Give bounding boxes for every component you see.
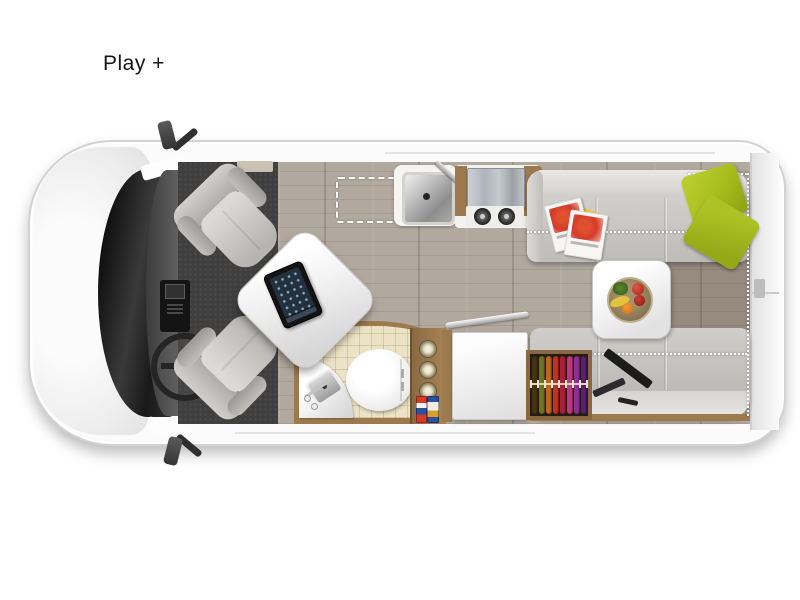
glass-icon	[419, 361, 437, 379]
magazine-icon	[564, 209, 609, 260]
glass-icon	[419, 340, 437, 358]
optional-area-dashed-outline	[336, 177, 400, 223]
fridge-wood-trim	[442, 330, 452, 422]
center-console	[160, 280, 190, 332]
magazine-cover	[570, 214, 603, 243]
rear-doors	[750, 153, 779, 430]
fruit-orange	[622, 303, 633, 314]
wardrobe-hangers-icon	[530, 380, 588, 388]
cushion-seam	[664, 328, 667, 390]
cushion-seam	[664, 198, 667, 262]
stove-lid-icon	[467, 168, 525, 208]
bed-conversion-dashed-line	[747, 173, 751, 416]
bathroom-knob	[311, 403, 318, 410]
bathroom-knob	[304, 395, 311, 402]
rear-door-latch	[754, 279, 765, 298]
sofa-top-armrest	[527, 170, 543, 262]
fruit-grapes	[613, 282, 628, 295]
sink-drain	[423, 193, 430, 200]
stove-burners-icon	[466, 206, 524, 227]
toilet-icon	[346, 349, 413, 411]
toiletry-box-icon	[416, 396, 427, 423]
toilet-lid-seam	[400, 359, 402, 401]
burner-right	[498, 208, 515, 225]
toilet-hinge	[401, 382, 404, 391]
burner-left	[474, 208, 491, 225]
console-controls-icon	[167, 302, 183, 314]
fridge-cabinet	[452, 332, 528, 420]
wall-seam-bottom	[235, 432, 535, 434]
floorplan-page: Play +	[0, 0, 800, 600]
magazine-text	[570, 241, 598, 248]
sliding-door-seam-top	[385, 152, 715, 154]
console-screen-icon	[165, 284, 185, 299]
toiletry-box-icon	[427, 396, 439, 423]
toilet-hinge	[401, 369, 404, 378]
fruit-apple	[632, 283, 644, 295]
fruit-apple	[634, 295, 645, 306]
model-name-label: Play +	[103, 52, 165, 76]
